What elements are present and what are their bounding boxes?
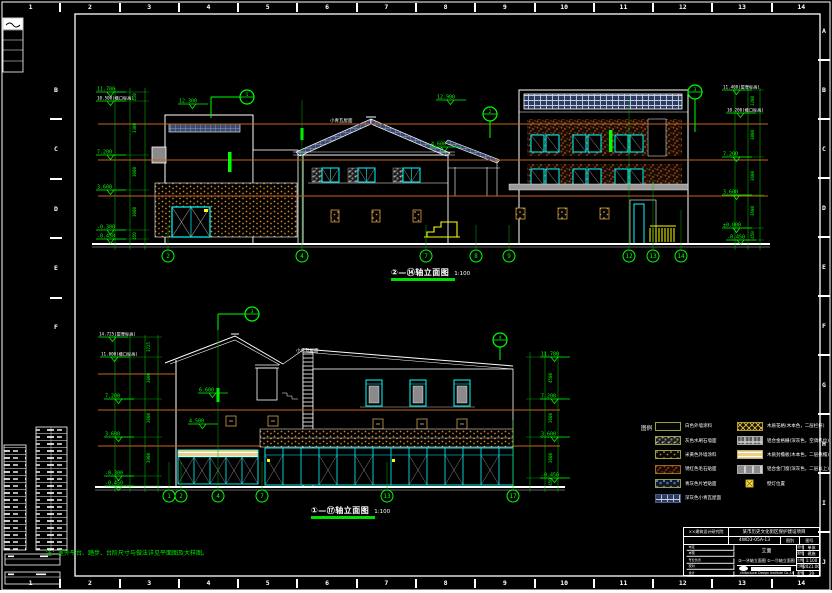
ruler-number: 12 [654, 579, 713, 588]
axis-label: 13 [383, 493, 391, 500]
signature-row: 专业负责 [687, 558, 735, 564]
level-triangle-icon [737, 113, 744, 118]
legend-right-column: 木质花格(木本色，二层栏杆) 铝合金格栅(深灰色，空调机位) 木质封檐板(木本色… [737, 419, 829, 491]
level-triangle-icon [107, 239, 114, 244]
level-triangle-icon [733, 157, 740, 162]
signature-row: 设计 [687, 571, 735, 577]
storefront-right [265, 448, 513, 485]
stamp-left: 图别 [781, 537, 800, 545]
level-value: 11.700 [97, 87, 115, 93]
axis-label: 1 [167, 493, 171, 500]
legend-label: 铝合金门窗(深灰色，二层以上) [767, 466, 829, 472]
legend-item: 青灰色片岩贴面 [655, 477, 721, 491]
legend-label: 壁灯位置 [767, 481, 785, 487]
legend-swatch [737, 479, 763, 488]
certificate-cell [684, 537, 729, 545]
corner-table [3, 18, 23, 72]
ruler-letter: A [818, 2, 830, 61]
axis-label: 7 [260, 493, 264, 500]
level-value: 10.200(檐口标高) [727, 107, 764, 114]
axis-label: 12 [625, 253, 633, 260]
info-label: 图号 [797, 571, 803, 576]
level-value: -0.300 [97, 225, 115, 231]
top-elevation-title: ②—⑭轴立面图1:100 [391, 267, 470, 278]
axis-label: 4 [216, 493, 220, 500]
level-value: 12.300 [179, 99, 197, 105]
legend-item: 深灰色小青瓦屋面 [655, 491, 721, 505]
legend-item: 铝合金门窗(深灰色，二层以上) [737, 462, 829, 476]
signature-row: 审核 [687, 552, 735, 558]
callout-label: 1 [246, 92, 249, 98]
drawing-title-line2: ②—⑭轴立面图 ①—⑰轴立面图 [737, 556, 797, 566]
level-value: 11.400(屋脊标高) [723, 84, 760, 91]
top-elevation-drawing: 小青瓦屋面 11.70010.500(檐口标高)7.2003.600-0.300… [92, 84, 770, 263]
legend-item: 木质封檐板(木本色，二层挑檐) [737, 448, 829, 462]
level-value: -0.450 [541, 473, 559, 479]
ruler-number: 12 [654, 3, 713, 12]
legend-title: 图例 [641, 424, 652, 432]
info-label: 日期 [797, 564, 803, 569]
level-value: 3.600 [541, 432, 556, 438]
axis-label: 7 [424, 253, 428, 260]
legend-item: 铝合金格栅(深灰色，空调机位) [737, 433, 829, 447]
ruler-letter: G [818, 356, 830, 415]
level-triangle-icon [115, 437, 122, 442]
project-number: 4WD3-05A-13 [729, 537, 781, 545]
dim-value: 3300 [132, 122, 137, 133]
level-value: 11.000(檐口标高) [101, 351, 138, 358]
drawing-title-line1: 立面 [737, 545, 797, 556]
firm-name-en: Architectural Design Institute Co.,Ltd. [740, 571, 794, 575]
roof-material-label-top: 小青瓦屋面 [330, 117, 353, 124]
legend-swatch [655, 436, 681, 445]
dim-value: 1200 [750, 95, 755, 106]
dim-value: 450 [750, 231, 755, 239]
level-value: 4.500 [189, 419, 204, 425]
top-ruler: 1234567891011121314 [2, 3, 830, 12]
dim-value: 3600 [146, 412, 151, 423]
dim-value: 3600 [132, 206, 137, 217]
info-rows: 设计 单体 图别 建施 比例 1:100 日期 2021.06 图号 29 [797, 545, 819, 575]
ruler-number: 4 [180, 3, 239, 12]
level-triangle-icon [189, 104, 196, 109]
ruler-number: 7 [358, 579, 417, 588]
design-firm-name: ××建筑设计研究院 [684, 528, 729, 537]
ruler-letter: F [818, 297, 830, 356]
level-value: 3.600 [97, 185, 112, 191]
dim-value: 450 [132, 93, 137, 101]
title-block: ××建筑设计研究院 某市历史文化街区保护建设项目 4WD3-05A-13 图别 … [683, 527, 820, 576]
signature-strip [4, 427, 67, 584]
callout-label: 4 [499, 335, 502, 341]
legend-label: 白色外墙涂料 [685, 423, 712, 429]
legend-label: 木质花格(木本色，二层栏杆) [767, 423, 825, 429]
info-value: 1:100 [804, 558, 819, 563]
legend-label: 木质封檐板(木本色，二层挑檐) [767, 452, 829, 458]
ruler-letter: E [818, 238, 830, 297]
legend-swatch [655, 494, 681, 503]
legend-item: 灰色水刷石墙面 [655, 433, 721, 447]
level-value: 7.200 [541, 394, 556, 400]
level-value: -0.450 [105, 481, 123, 487]
logo-bar [751, 567, 791, 571]
ruler-letter: C [818, 120, 830, 179]
legend-label: 深灰色小青瓦屋面 [685, 495, 721, 501]
level-triangle-icon [733, 90, 740, 95]
ruler-number: 9 [476, 579, 535, 588]
legend-swatch [655, 479, 681, 488]
ruler-letter: D [50, 180, 62, 239]
ruler-number: 13 [713, 579, 772, 588]
legend-swatch [737, 436, 763, 445]
level-value: 10.500(檐口标高) [97, 95, 134, 102]
dim-value: 3900 [146, 452, 151, 463]
axis-label: 8 [474, 253, 478, 260]
legend-label: 铝合金格栅(深灰色，空调机位) [767, 438, 829, 444]
legend-label: 灰色水刷石墙面 [685, 438, 717, 444]
dim-value: 450 [132, 232, 137, 240]
ruler-number: 6 [298, 3, 357, 12]
info-value: 单体 [804, 545, 819, 550]
level-value: 6.600 [199, 388, 214, 394]
level-triangle-icon [733, 228, 740, 233]
project-name: 某市历史文化街区保护建设项目 [729, 528, 819, 537]
dim-value: 3600 [750, 205, 755, 216]
axis-label: 2 [179, 493, 183, 500]
callout-label: 3 [251, 309, 254, 315]
dim-value: 3600 [548, 452, 553, 463]
ruler-number: 5 [239, 579, 298, 588]
signature-row: 审定 [687, 545, 735, 551]
dim-value: 4500 [548, 372, 553, 383]
level-value: 11.700 [541, 352, 559, 358]
ruler-number: 10 [536, 579, 595, 588]
level-value: 3.600 [105, 432, 120, 438]
bottom-ruler: 1234567891011121314 [2, 579, 830, 588]
level-value: ±0.000 [723, 223, 741, 229]
level-triangle-icon [107, 101, 114, 106]
ruler-letter: B [50, 61, 62, 120]
ruler-number: 8 [417, 579, 476, 588]
axis-label: 13 [649, 253, 657, 260]
info-value: 建施 [804, 551, 819, 556]
material-legend: 图例 白色外墙涂料 灰色水刷石墙面 米黄色外墙涂料 锈红色毛石贴面 [641, 419, 831, 519]
ruler-number: 2 [61, 579, 120, 588]
legend-swatch [655, 422, 681, 431]
bottom-elevation-drawing: 小青瓦屋面 14.725(屋脊标高)11.000(檐口标高)7.2003.600… [95, 307, 570, 502]
level-triangle-icon [107, 155, 114, 160]
legend-label: 米黄色外墙涂料 [685, 452, 717, 458]
level-triangle-icon [447, 100, 454, 105]
info-label: 图别 [797, 552, 803, 557]
ruler-number: 2 [61, 3, 120, 12]
bottom-title-underline [311, 516, 375, 519]
legend-swatch [655, 465, 681, 474]
level-value: 14.725(屋脊标高) [99, 331, 136, 338]
legend-item: 壁灯位置 [737, 477, 829, 491]
level-value: 7.200 [723, 152, 738, 158]
level-triangle-icon [551, 357, 558, 362]
dim-value: 3000 [750, 129, 755, 140]
axis-label: 14 [677, 253, 685, 260]
legend-item: 米黄色外墙涂料 [655, 448, 721, 462]
ruler-number: 6 [298, 579, 357, 588]
legend-item: 木质花格(木本色，二层栏杆) [737, 419, 829, 433]
level-triangle-icon [111, 357, 118, 362]
left-letter-band: BCDEF [50, 61, 64, 356]
legend-item: 白色外墙涂料 [655, 419, 721, 433]
ruler-number: 9 [476, 3, 535, 12]
ruler-number: 3 [121, 3, 180, 12]
axis-label: 9 [507, 253, 511, 260]
info-row: 图号 29 [797, 571, 819, 577]
ruler-number: 11 [595, 3, 654, 12]
cad-sheet: { "sheet": { "ruler_numbers": ["1","2","… [0, 0, 832, 593]
level-value: 7.200 [105, 394, 120, 400]
level-value: 3.600 [723, 190, 738, 196]
axis-label: 4 [300, 253, 304, 260]
ruler-letter: F [50, 299, 62, 356]
axis-label: 2 [166, 253, 170, 260]
ruler-number: 3 [121, 579, 180, 588]
level-triangle-icon [551, 437, 558, 442]
ruler-number: 5 [239, 3, 298, 12]
callout-label: 3 [694, 87, 697, 93]
info-label: 比例 [797, 558, 803, 563]
legend-label: 锈红色毛石贴面 [685, 466, 717, 472]
level-value: 4.600 [431, 142, 446, 148]
ruler-number: 1 [2, 3, 61, 12]
bottom-window-row [360, 380, 475, 407]
dim-value: 3600 [750, 170, 755, 181]
dim-value: 3800 [146, 372, 151, 383]
level-value: -0.450 [727, 235, 745, 241]
ruler-number: 8 [417, 3, 476, 12]
ruler-number: 11 [595, 579, 654, 588]
ruler-letter: D [818, 179, 830, 238]
dim-value: 3600 [548, 412, 553, 423]
legend-swatch [737, 465, 763, 474]
signature-rows: 审定 审核 专业负责 校对 设计 [684, 545, 737, 575]
ruler-number: 7 [358, 3, 417, 12]
level-value: -0.450 [97, 234, 115, 240]
legend-swatch [737, 422, 763, 431]
dim-value: 450 [548, 478, 553, 486]
ruler-number: 10 [536, 3, 595, 12]
legend-left-column: 白色外墙涂料 灰色水刷石墙面 米黄色外墙涂料 锈红色毛石贴面 青灰色片岩贴面 [655, 419, 721, 505]
dim-value: 3600 [132, 166, 137, 177]
callout-label: 2 [489, 109, 492, 115]
signature-row: 校对 [687, 564, 735, 570]
top-title-underline [391, 278, 455, 281]
roof-material-label-bottom: 小青瓦屋面 [296, 347, 319, 354]
dim-value: 3725 [146, 341, 151, 352]
stamp-right: 图号 [800, 537, 819, 545]
level-value: 7.200 [97, 150, 112, 156]
info-label: 设计 [797, 545, 803, 550]
level-triangle-icon [107, 190, 114, 195]
bottom-elevation-title: ①—⑰轴立面图1:100 [311, 505, 390, 516]
ruler-number: 1 [2, 579, 61, 588]
level-value: -0.300 [105, 471, 123, 477]
axis-label: 17 [509, 493, 517, 500]
ruler-letter: B [818, 61, 830, 120]
legend-label: 青灰色片岩贴面 [685, 481, 717, 487]
ruler-number: 4 [180, 579, 239, 588]
drawing-note: 注：室外平台、踏步、台阶尺寸与做法详见平面图及大样图。 [46, 548, 208, 557]
legend-item: 锈红色毛石贴面 [655, 462, 721, 476]
legend-swatch [737, 450, 763, 459]
ruler-letter: C [50, 120, 62, 179]
ruler-number: 13 [713, 3, 772, 12]
legend-swatch [655, 450, 681, 459]
level-value: 12.900 [437, 95, 455, 101]
ruler-letter: E [50, 239, 62, 298]
level-triangle-icon [115, 399, 122, 404]
info-value: 2021.06 [804, 564, 819, 569]
info-value: 29 [804, 571, 819, 576]
level-triangle-icon [551, 399, 558, 404]
